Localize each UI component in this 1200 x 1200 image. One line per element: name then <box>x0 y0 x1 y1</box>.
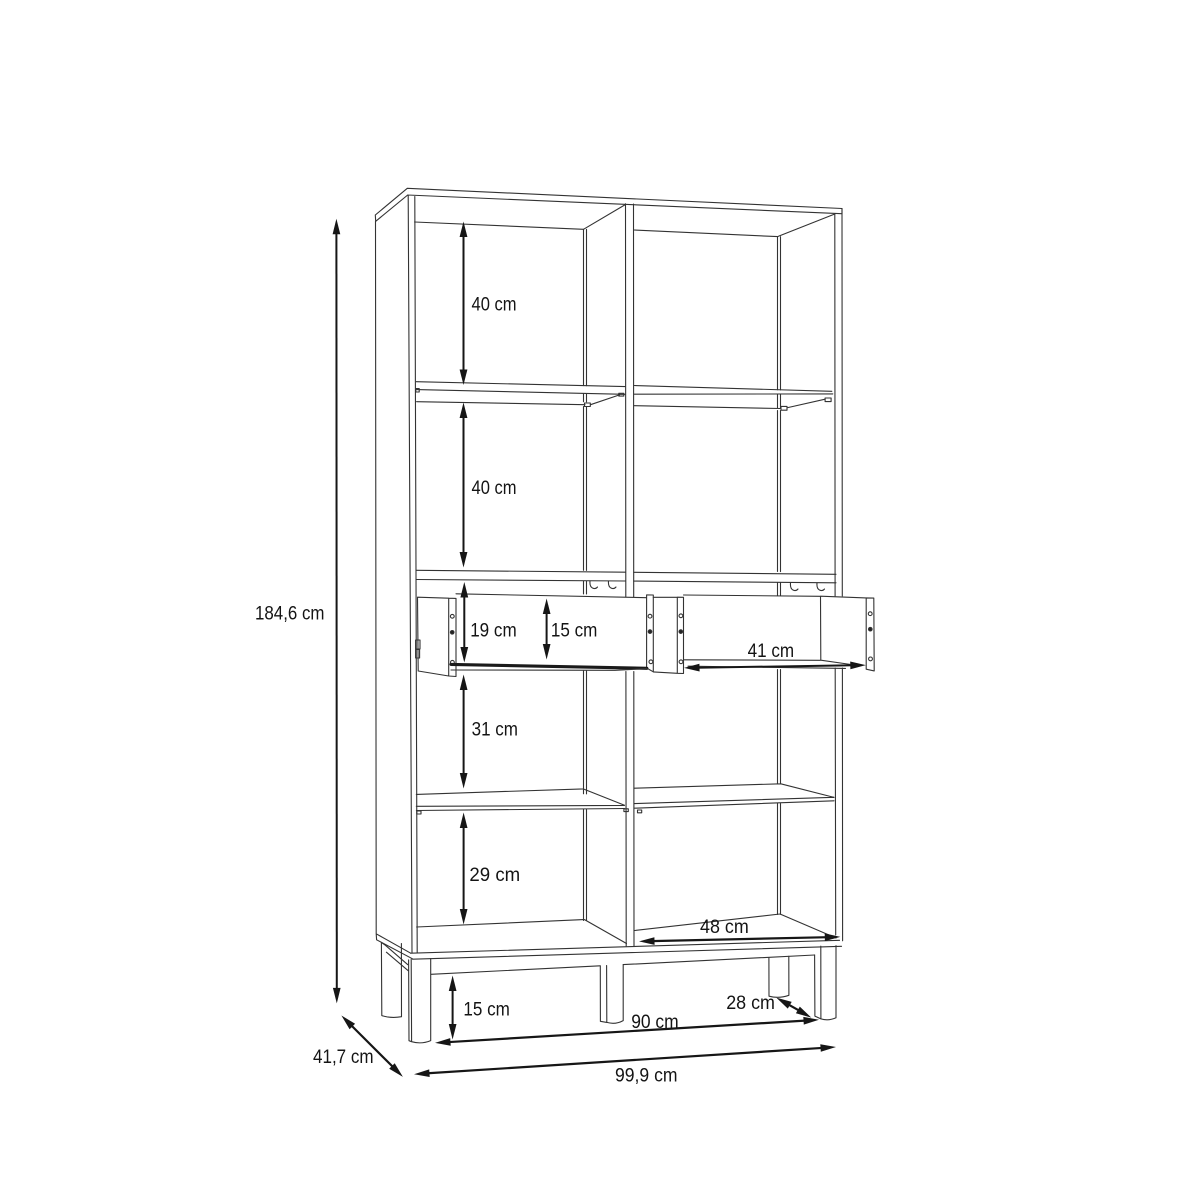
svg-text:29 cm: 29 cm <box>469 864 520 886</box>
svg-text:31 cm: 31 cm <box>472 718 518 740</box>
svg-text:40 cm: 40 cm <box>472 477 517 499</box>
svg-text:19 cm: 19 cm <box>470 619 517 641</box>
svg-text:41 cm: 41 cm <box>748 640 795 662</box>
svg-text:90 cm: 90 cm <box>631 1011 679 1033</box>
svg-text:28 cm: 28 cm <box>726 992 775 1014</box>
svg-text:15 cm: 15 cm <box>463 998 510 1020</box>
svg-text:15 cm: 15 cm <box>551 620 598 642</box>
svg-text:40 cm: 40 cm <box>472 293 517 315</box>
svg-text:184,6 cm: 184,6 cm <box>255 602 325 624</box>
svg-text:99,9 cm: 99,9 cm <box>615 1064 678 1086</box>
svg-text:41,7 cm: 41,7 cm <box>313 1046 374 1068</box>
svg-text:48 cm: 48 cm <box>700 916 749 938</box>
